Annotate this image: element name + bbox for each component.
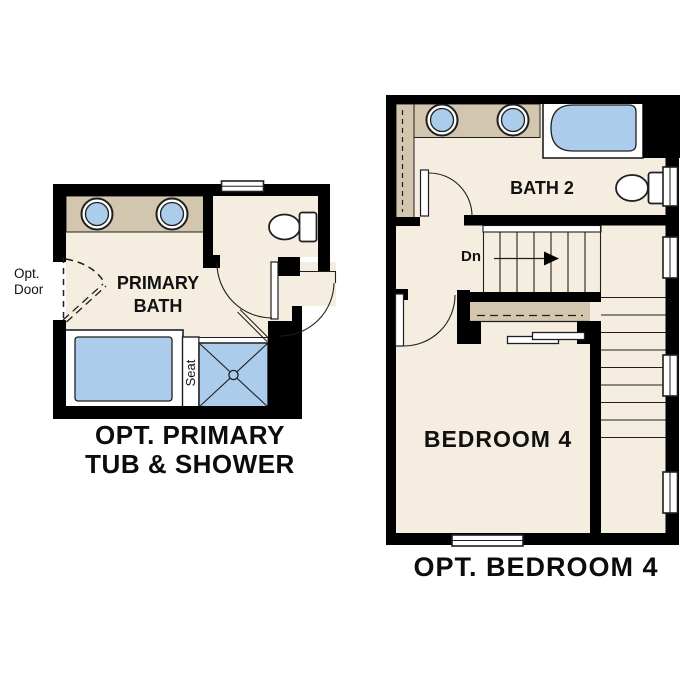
right-plan-caption: OPT. BEDROOM 4 [386, 552, 686, 583]
linen-closet [396, 104, 414, 220]
sink-icon [157, 199, 188, 230]
stairs-down-label: Dn [461, 248, 481, 265]
bedroom4-room-label: BEDROOM 4 [412, 426, 584, 453]
window-icon [452, 535, 523, 546]
bedroom4-plan [386, 95, 680, 546]
bath2-room-label: BATH 2 [492, 178, 592, 199]
tub-icon [543, 98, 643, 158]
toilet-icon [269, 213, 317, 242]
left-plan-caption: OPT. PRIMARY TUB & SHOWER [38, 421, 342, 479]
window-icon [663, 237, 678, 278]
sink-icon [498, 105, 529, 136]
primary-bath-room-label: PRIMARY BATH [103, 272, 213, 317]
optional-door-label: Opt. Door [14, 266, 58, 298]
sink-icon [427, 105, 458, 136]
sink-icon [82, 199, 113, 230]
tub-icon [63, 330, 183, 408]
floor-plan-page: { "colors": { "wall": "#000000", "floor"… [0, 0, 687, 687]
floor-plan-canvas [0, 0, 687, 687]
bath2-vanity-counter [414, 104, 540, 138]
closet-shelf [470, 302, 590, 322]
window-icon [663, 472, 678, 513]
left-plan-caption-line2: TUB & SHOWER [38, 450, 342, 479]
window-icon [663, 167, 678, 206]
primary-vanity-counter [66, 196, 205, 232]
toilet-icon [616, 173, 665, 204]
window-icon [222, 181, 264, 192]
shower-seat-label: Seat [184, 348, 198, 398]
left-plan-caption-line1: OPT. PRIMARY [38, 421, 342, 450]
window-icon [663, 355, 678, 396]
